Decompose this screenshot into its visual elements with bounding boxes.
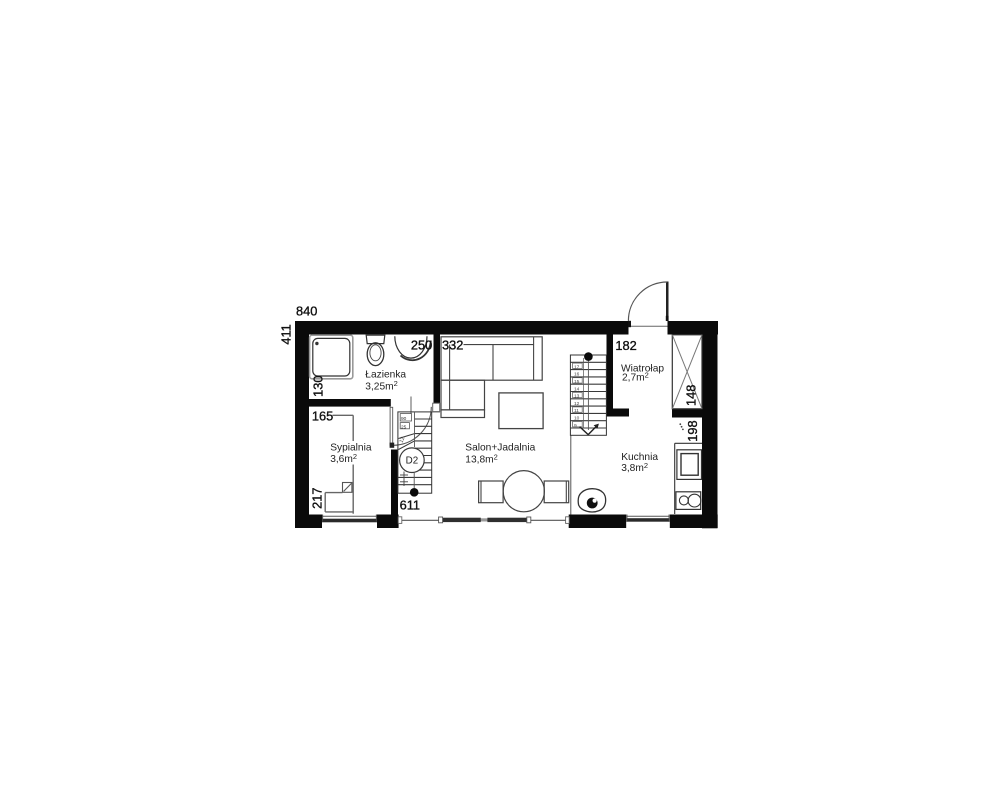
svg-text:16: 16 (574, 372, 580, 378)
svg-text:14: 14 (574, 386, 580, 392)
svg-text:25: 25 (401, 424, 407, 430)
svg-text:13,8m2: 13,8m2 (465, 452, 498, 465)
svg-text:130: 130 (310, 376, 325, 397)
svg-text:17: 17 (574, 364, 580, 370)
svg-text:13: 13 (574, 394, 580, 400)
svg-text:840: 840 (296, 303, 317, 318)
svg-text:182: 182 (615, 338, 636, 353)
svg-text:198: 198 (685, 420, 700, 441)
svg-text:332: 332 (442, 338, 463, 353)
svg-text:3,25m2: 3,25m2 (365, 379, 398, 392)
svg-text:217: 217 (309, 488, 324, 509)
svg-text:12: 12 (574, 401, 580, 407)
svg-text:Sypialnia: Sypialnia (330, 442, 372, 453)
svg-text:D2: D2 (406, 456, 419, 467)
svg-text:Salon+Jadalnia: Salon+Jadalnia (465, 442, 535, 453)
svg-text:Łazienka: Łazienka (365, 369, 406, 380)
svg-text:411: 411 (278, 324, 293, 344)
svg-text:10: 10 (574, 416, 580, 422)
svg-text:90: 90 (401, 416, 407, 422)
svg-text:11: 11 (574, 408, 579, 414)
svg-text:15: 15 (574, 379, 580, 385)
svg-text:250: 250 (411, 337, 432, 352)
svg-text:165: 165 (312, 408, 333, 423)
svg-text:148: 148 (684, 385, 699, 406)
svg-text:611: 611 (400, 498, 420, 513)
svg-text:Kuchnia: Kuchnia (621, 452, 658, 463)
svg-text:9: 9 (574, 423, 577, 429)
